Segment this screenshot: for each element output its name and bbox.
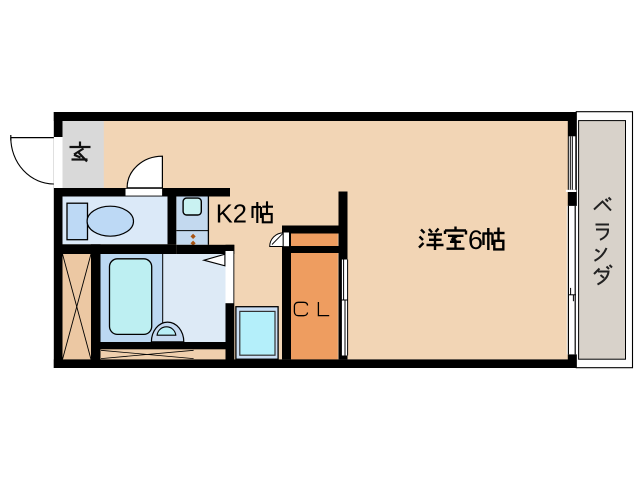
- svg-text:K2: K2: [216, 201, 247, 229]
- svg-text:6: 6: [468, 225, 483, 255]
